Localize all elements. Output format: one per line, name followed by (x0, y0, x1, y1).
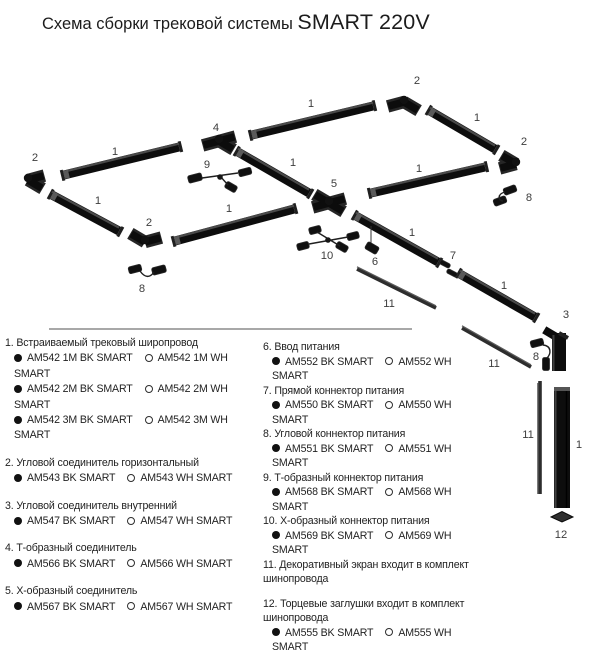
open-dot-icon (385, 401, 393, 409)
legend-item: 4. Т-образный соединительAM566 BK SMARTA… (5, 541, 258, 572)
callout-number: 1 (409, 227, 415, 239)
callout-number: 11 (488, 358, 500, 370)
variant-row: AM542 1M BK SMARTAM542 1M WH SMART (14, 351, 258, 382)
track-flange (49, 194, 52, 195)
track-flange (368, 193, 371, 194)
variant-row: AM568 BK SMARTAM568 WH SMART (272, 485, 485, 514)
variant-row: AM543 BK SMARTAM543 WH SMART (14, 471, 258, 486)
track-segment (252, 106, 373, 135)
tee-connector-cap (215, 135, 223, 143)
open-dot-icon (145, 416, 153, 424)
track-top-edge (356, 213, 438, 259)
legend-item-title: 3. Угловой соединитель внутренний (5, 499, 258, 514)
track-segment (371, 167, 485, 193)
filled-dot-icon (272, 444, 280, 452)
variant-wh-label: AM547 WH SMART (140, 515, 232, 527)
open-dot-icon (385, 628, 393, 636)
variant-bk-label: AM543 BK SMART (27, 472, 115, 484)
track-flange (294, 208, 297, 209)
callout-number: 2 (32, 152, 38, 164)
callout-number: 1 (95, 195, 101, 207)
power-plug (187, 173, 202, 184)
callout-number: 2 (414, 75, 420, 87)
variant-bk-label: AM555 BK SMART (285, 627, 373, 639)
legend-item: 12. Торцевые заглушки входит в комплект … (263, 597, 485, 655)
track-segment (52, 195, 119, 231)
cross-connector-cap (325, 197, 333, 205)
legend-variants: AM543 BK SMARTAM543 WH SMART (5, 471, 258, 486)
track-end-face (238, 152, 242, 155)
filled-dot-icon (272, 401, 280, 409)
callout-number: 1 (226, 203, 232, 215)
track-end-face (175, 240, 180, 241)
legend-variants: AM568 BK SMARTAM568 WH SMART (263, 485, 485, 514)
open-dot-icon (385, 444, 393, 452)
power-wire (543, 345, 550, 358)
legend-variants: AM542 1M BK SMARTAM542 1M WH SMARTAM542 … (5, 351, 258, 443)
callout-number: 1 (474, 112, 480, 124)
legend-item-title: 11. Декоративный экран входит в комплект… (263, 558, 485, 587)
open-dot-icon (385, 531, 393, 539)
callout-number: 3 (563, 309, 569, 321)
track-flange (535, 317, 538, 318)
filled-dot-icon (14, 602, 22, 610)
power-plug (296, 241, 309, 251)
track-segment (460, 274, 535, 317)
legend-variants: AM569 BK SMARTAM569 WH SMART (263, 529, 485, 558)
filled-dot-icon (272, 628, 280, 636)
track-top-edge (64, 144, 179, 172)
variant-row: AM542 3M BK SMARTAM542 3M WH SMART (14, 413, 258, 444)
legend-item-title: 2. Угловой соединитель горизонтальный (5, 456, 258, 471)
callout-number: 10 (321, 250, 333, 262)
callout-number: 6 (372, 256, 378, 268)
variant-bk-label: AM542 2M BK SMART (27, 383, 133, 395)
callout-number: 1 (112, 146, 118, 158)
track-top-edge (371, 164, 485, 190)
callout-number: 5 (331, 178, 337, 190)
callout-number: 2 (521, 136, 527, 148)
legend-item-title: 8. Угловой коннектор питания (263, 427, 485, 442)
legend-item: 6. Ввод питанияAM552 BK SMARTAM552 WH SM… (263, 340, 485, 384)
filled-dot-icon (14, 416, 22, 424)
variant-row: AM567 BK SMARTAM567 WH SMART (14, 600, 258, 615)
power-plug (346, 231, 359, 241)
legend-item: 8. Угловой коннектор питанияAM551 BK SMA… (263, 427, 485, 471)
legend-variants: AM551 BK SMARTAM551 WH SMART (263, 442, 485, 471)
open-dot-icon (385, 357, 393, 365)
track-flange (373, 105, 376, 106)
variant-row: AM555 BK SMARTAM555 WH SMART (272, 626, 485, 655)
callout-number: 1 (416, 163, 422, 175)
variant-bk-label: AM547 BK SMART (27, 515, 115, 527)
straight-connector (446, 268, 458, 277)
track-flange (235, 150, 238, 152)
power-node (325, 237, 331, 243)
track-end-face (356, 216, 360, 218)
variant-bk-label: AM550 BK SMART (285, 399, 373, 411)
variant-bk-label: AM542 1M BK SMART (27, 352, 133, 364)
track-flange (485, 166, 488, 167)
open-dot-icon (145, 385, 153, 393)
track-flange (427, 109, 430, 111)
open-dot-icon (127, 559, 135, 567)
callout-number: 8 (139, 283, 145, 295)
variant-wh-label: AM543 WH SMART (140, 472, 232, 484)
track-end-face (371, 192, 376, 193)
track-flange (495, 149, 498, 151)
track-end-face (52, 195, 56, 197)
track-end-face (252, 134, 257, 135)
legend-column-right: 6. Ввод питанияAM552 BK SMARTAM552 WH SM… (263, 340, 485, 655)
open-dot-icon (385, 488, 393, 496)
variant-bk-label: AM542 3M BK SMART (27, 414, 133, 426)
callout-number: 1 (576, 439, 582, 451)
filled-dot-icon (14, 354, 22, 362)
legend-item-title: 7. Прямой коннектор питания (263, 384, 485, 399)
corner-connector-cap (512, 158, 520, 166)
power-plug (493, 195, 508, 206)
legend-item-title: 12. Торцевые заглушки входит в комплект … (263, 597, 485, 626)
legend-item-title: 1. Встраиваемый трековый широпровод (5, 336, 258, 351)
power-plug (128, 264, 142, 274)
legend-variants: AM567 BK SMARTAM567 WH SMART (5, 600, 258, 615)
assembly-scheme-page: { "title": { "prefix": "Схема сборки тре… (0, 0, 600, 600)
callout-number: 7 (450, 250, 456, 262)
variant-row: AM566 BK SMARTAM566 WH SMART (14, 557, 258, 572)
end-cap (551, 512, 573, 523)
power-plug (543, 358, 550, 371)
track-segment (175, 209, 294, 241)
callout-number: 1 (501, 280, 507, 292)
track-flange (457, 273, 460, 274)
track-flange (172, 241, 175, 242)
decor-screen-edge (357, 267, 436, 306)
legend-item: 9. Т-образный коннектор питанияAM568 BK … (263, 471, 485, 515)
legend-variants: AM566 BK SMARTAM566 WH SMART (5, 557, 258, 572)
legend-item-title: 9. Т-образный коннектор питания (263, 471, 485, 486)
filled-dot-icon (272, 531, 280, 539)
callout-number: 1 (290, 157, 296, 169)
filled-dot-icon (272, 488, 280, 496)
track-flange (119, 231, 122, 232)
legend-item-title: 10. Х-образный коннектор питания (263, 514, 485, 529)
legend-item: 7. Прямой коннектор питанияAM550 BK SMAR… (263, 384, 485, 428)
callout-number: 9 (204, 159, 210, 171)
open-dot-icon (127, 474, 135, 482)
track-top-edge (52, 192, 119, 228)
corner-connector-cap (141, 236, 149, 244)
track-end-face (430, 111, 434, 114)
legend-item: 1. Встраиваемый трековый широпроводAM542… (5, 336, 258, 444)
power-node (217, 174, 223, 180)
track-flange (179, 146, 182, 147)
variant-bk-label: AM551 BK SMART (285, 443, 373, 455)
variant-row: AM551 BK SMARTAM551 WH SMART (272, 442, 485, 471)
legend-variants: AM555 BK SMARTAM555 WH SMART (263, 626, 485, 655)
variant-wh-label: AM566 WH SMART (140, 558, 232, 570)
filled-dot-icon (14, 385, 22, 393)
legend-variants: AM547 BK SMARTAM547 WH SMART (5, 514, 258, 529)
variant-row: AM547 BK SMARTAM547 WH SMART (14, 514, 258, 529)
callout-number: 2 (146, 217, 152, 229)
track-end-face (64, 174, 69, 175)
filled-dot-icon (14, 474, 22, 482)
variant-bk-label: AM567 BK SMART (27, 601, 115, 613)
callout-number: 8 (533, 351, 539, 363)
track-segment (356, 216, 438, 262)
callout-number: 11 (522, 429, 534, 441)
power-feed (364, 241, 379, 254)
legend-item: 3. Угловой соединитель внутреннийAM547 B… (5, 499, 258, 530)
variant-bk-label: AM552 BK SMART (285, 356, 373, 368)
power-plug (530, 338, 544, 348)
variant-wh-label: AM567 WH SMART (140, 601, 232, 613)
track-flange (249, 135, 252, 136)
track-flange (61, 175, 64, 176)
legend-variants: AM552 BK SMARTAM552 WH SMART (263, 355, 485, 384)
corner-connector-cap (24, 174, 32, 182)
legend-item-title: 4. Т-образный соединитель (5, 541, 258, 556)
power-plug (151, 265, 166, 276)
variant-row: AM550 BK SMARTAM550 WH SMART (272, 398, 485, 427)
track-segment (430, 111, 495, 149)
variant-bk-label: AM569 BK SMART (285, 530, 373, 542)
track-flange (309, 193, 312, 195)
power-plug (503, 184, 518, 195)
callout-number: 12 (555, 529, 567, 541)
filled-dot-icon (14, 517, 22, 525)
legend-item: 11. Декоративный экран входит в комплект… (263, 558, 485, 587)
track-end-face (460, 274, 464, 276)
track-flange (353, 215, 356, 216)
variant-row: AM542 2M BK SMARTAM542 2M WH SMART (14, 382, 258, 413)
callout-number: 4 (213, 122, 219, 134)
filled-dot-icon (272, 357, 280, 365)
track-segment (64, 147, 179, 175)
callout-number: 1 (308, 98, 314, 110)
power-plug (238, 167, 252, 177)
callout-number: 11 (383, 298, 395, 310)
legend-item: 2. Угловой соединитель горизонтальныйAM5… (5, 456, 258, 487)
open-dot-icon (127, 602, 135, 610)
track-top-edge (175, 206, 294, 238)
variant-bk-label: AM568 BK SMART (285, 486, 373, 498)
power-plug (335, 241, 349, 253)
callout-number: 8 (526, 192, 532, 204)
legend-variants: AM550 BK SMARTAM550 WH SMART (263, 398, 485, 427)
variant-row: AM569 BK SMARTAM569 WH SMART (272, 529, 485, 558)
decor-screen (357, 269, 436, 308)
legend-item-title: 5. Х-образный соединитель (5, 584, 258, 599)
filled-dot-icon (14, 559, 22, 567)
open-dot-icon (145, 354, 153, 362)
open-dot-icon (127, 517, 135, 525)
legend-item: 10. Х-образный коннектор питанияAM569 BK… (263, 514, 485, 558)
track-top-edge (460, 271, 535, 314)
track-top-edge (430, 108, 495, 146)
variant-row: AM552 BK SMARTAM552 WH SMART (272, 355, 485, 384)
legend-item-title: 6. Ввод питания (263, 340, 485, 355)
variant-bk-label: AM566 BK SMART (27, 558, 115, 570)
legend-column-left: 1. Встраиваемый трековый широпроводAM542… (5, 336, 258, 627)
corner-connector-cap (400, 96, 408, 104)
